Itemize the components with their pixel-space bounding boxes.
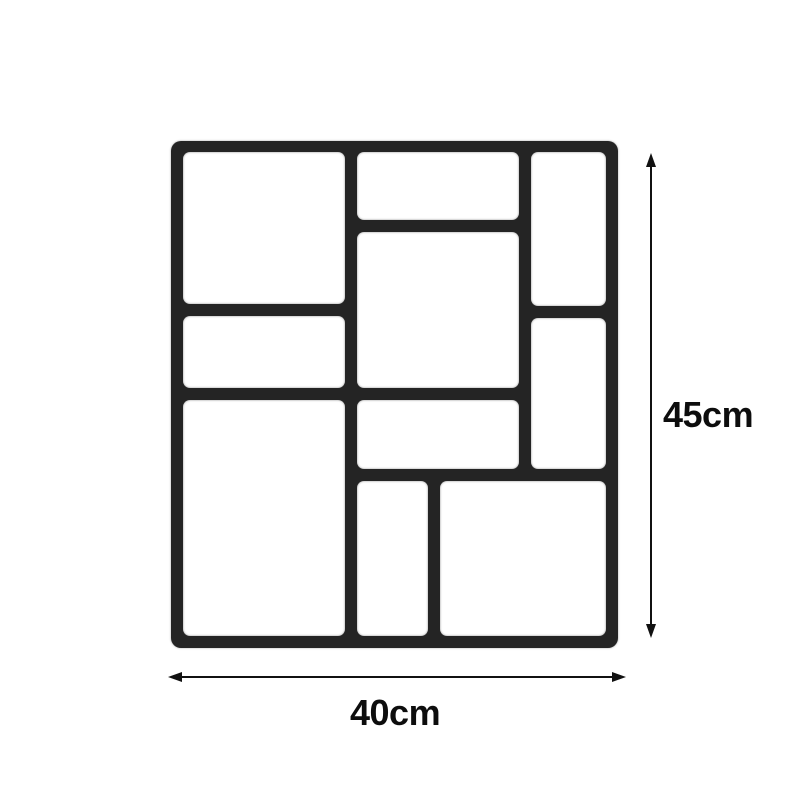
cavity-bottom-wide bbox=[440, 481, 606, 636]
width-dimension-label: 40cm bbox=[350, 695, 440, 731]
arrow-right-icon bbox=[612, 672, 626, 682]
product-image: 45cm 40cm bbox=[0, 0, 800, 800]
cavity-center-top bbox=[357, 152, 519, 220]
cavity-bottom-narrow bbox=[357, 481, 428, 636]
paving-mold-grid bbox=[171, 141, 618, 648]
width-dimension-line bbox=[180, 676, 614, 678]
cavity-center-main bbox=[357, 232, 519, 388]
height-dimension-line bbox=[650, 165, 652, 626]
cavity-left-top bbox=[183, 152, 345, 304]
height-dimension-label: 45cm bbox=[663, 397, 753, 433]
arrow-down-icon bbox=[646, 624, 656, 638]
cavity-left-middle bbox=[183, 316, 345, 388]
cavity-center-lower bbox=[357, 400, 519, 469]
cavity-right-middle bbox=[531, 318, 606, 469]
cavity-left-bottom bbox=[183, 400, 345, 636]
cavity-right-top bbox=[531, 152, 606, 306]
